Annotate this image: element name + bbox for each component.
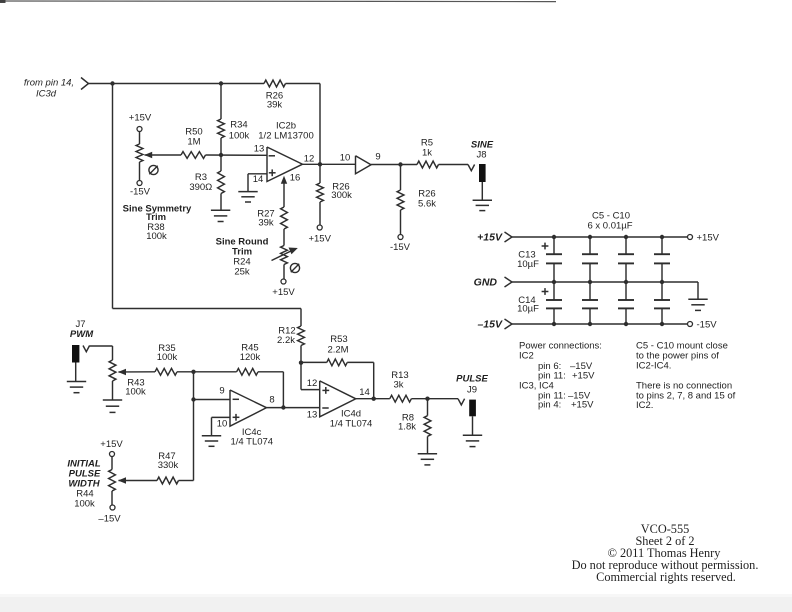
svg-text:6 x 0.01µF: 6 x 0.01µF: [587, 221, 632, 232]
svg-text:IC2-IC4.: IC2-IC4.: [636, 361, 671, 372]
svg-text:10µF: 10µF: [517, 304, 539, 315]
svg-text:–15V: –15V: [477, 319, 503, 331]
svg-text:12: 12: [307, 378, 318, 389]
svg-text:+15V: +15V: [477, 232, 503, 244]
svg-text:25k: 25k: [234, 267, 250, 278]
svg-text:2.2M: 2.2M: [327, 345, 348, 356]
svg-text:390Ω: 390Ω: [189, 182, 212, 193]
svg-text:R53: R53: [330, 334, 347, 345]
svg-text:IC2: IC2: [519, 351, 534, 362]
svg-text:1M: 1M: [187, 137, 200, 148]
svg-text:+15V: +15V: [571, 400, 594, 411]
svg-text:PULSE: PULSE: [456, 374, 488, 385]
svg-text:120k: 120k: [240, 352, 261, 363]
svg-text:1/4 TL074: 1/4 TL074: [230, 437, 273, 448]
svg-text:IC2.: IC2.: [636, 400, 653, 411]
svg-text:-15V: -15V: [390, 242, 411, 253]
svg-text:+15V: +15V: [272, 287, 295, 298]
svg-text:100k: 100k: [74, 499, 95, 510]
svg-text:-15V: -15V: [697, 320, 718, 331]
svg-text:1/4 TL074: 1/4 TL074: [330, 419, 373, 430]
svg-text:from pin 14,: from pin 14,: [24, 78, 74, 89]
svg-text:10: 10: [217, 419, 228, 430]
svg-text:14: 14: [253, 174, 264, 185]
svg-text:J9: J9: [467, 385, 477, 396]
svg-text:1/2 LM13700: 1/2 LM13700: [258, 131, 313, 142]
svg-text:5.6k: 5.6k: [418, 199, 436, 210]
svg-text:9: 9: [375, 152, 380, 163]
svg-text:100k: 100k: [229, 131, 250, 142]
svg-text:100k: 100k: [146, 231, 167, 242]
svg-text:13: 13: [254, 144, 265, 155]
svg-text:R34: R34: [230, 120, 247, 131]
svg-text:16: 16: [290, 173, 301, 184]
svg-text:-15V: -15V: [130, 187, 151, 198]
svg-text:1.8k: 1.8k: [398, 422, 416, 433]
svg-text:14: 14: [359, 387, 370, 398]
svg-text:J8: J8: [476, 150, 486, 161]
svg-text:+15V: +15V: [697, 233, 720, 244]
svg-text:+15V: +15V: [308, 234, 331, 245]
svg-text:1k: 1k: [422, 148, 432, 159]
svg-text:100k: 100k: [125, 387, 146, 398]
svg-text:330k: 330k: [158, 460, 179, 471]
svg-text:–15V: –15V: [98, 514, 121, 525]
svg-text:+15V: +15V: [100, 439, 123, 450]
svg-text:8: 8: [269, 395, 274, 406]
svg-text:IC3d: IC3d: [36, 89, 57, 100]
svg-text:+15V: +15V: [129, 113, 152, 124]
svg-text:100k: 100k: [157, 352, 178, 363]
svg-text:10µF: 10µF: [517, 259, 539, 270]
svg-text:2.2k: 2.2k: [277, 335, 295, 346]
svg-text:39k: 39k: [267, 100, 283, 111]
svg-text:300k: 300k: [331, 190, 352, 201]
svg-text:39k: 39k: [258, 218, 274, 229]
svg-text:10: 10: [340, 153, 351, 164]
svg-text:12: 12: [304, 154, 315, 165]
svg-text:pin 4:: pin 4:: [538, 400, 561, 411]
svg-text:Commercial rights reserved.: Commercial rights reserved.: [596, 570, 736, 584]
svg-text:13: 13: [307, 410, 318, 421]
svg-text:PWM: PWM: [70, 329, 94, 340]
svg-text:GND: GND: [474, 277, 498, 289]
svg-text:3k: 3k: [393, 380, 403, 391]
svg-text:9: 9: [219, 386, 224, 397]
svg-text:+15V: +15V: [572, 371, 595, 382]
